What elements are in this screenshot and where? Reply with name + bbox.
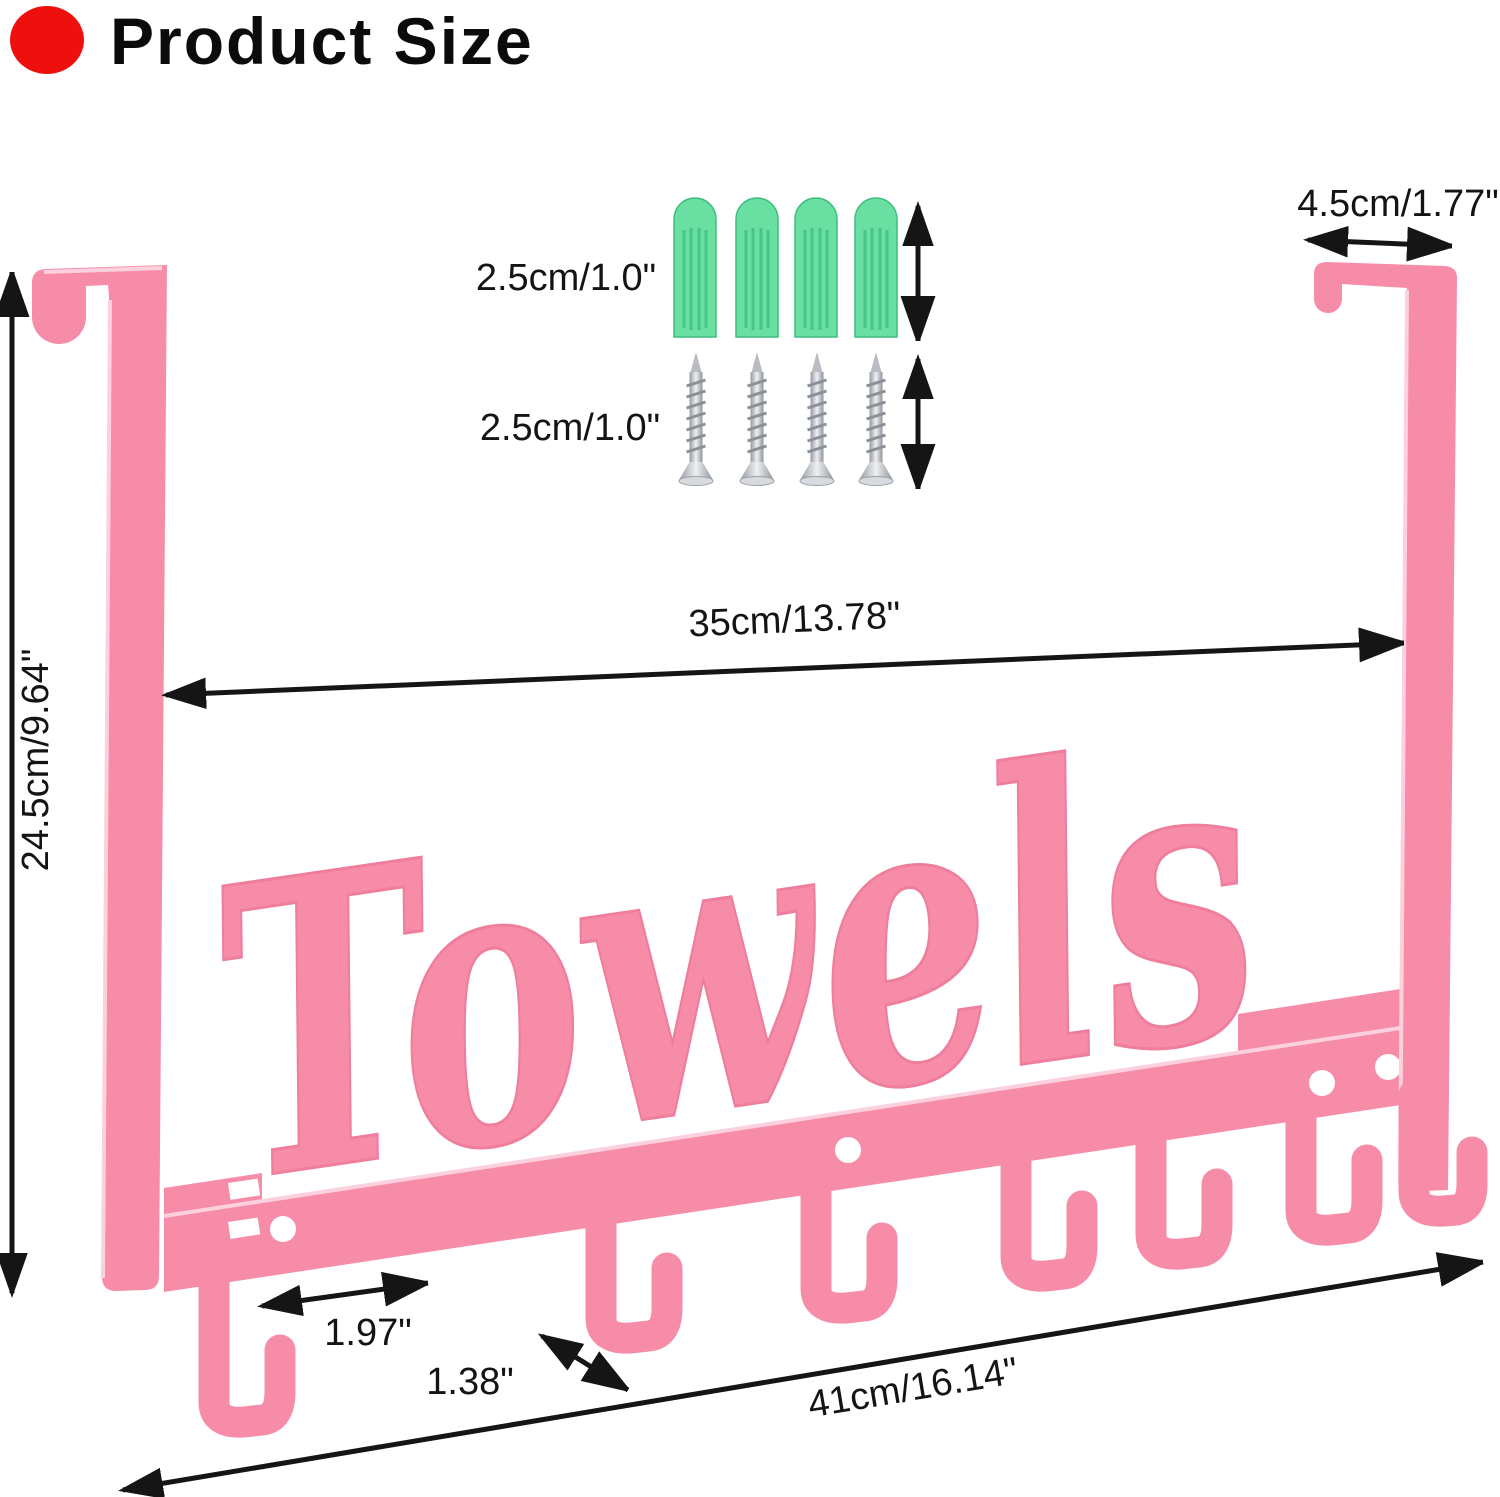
product-size-infographic: Product Size <box>0 0 1500 1497</box>
towels-script: Towels <box>188 657 1285 1272</box>
hook-width-label: 1.38" <box>426 1361 513 1403</box>
hook-3 <box>816 1182 882 1308</box>
anchor-3 <box>795 198 837 337</box>
wall-anchors <box>674 198 897 337</box>
screw-length-label: 2.5cm/1.0" <box>480 407 660 449</box>
screw-3 <box>800 352 834 486</box>
screw-4 <box>859 352 893 486</box>
bracket-depth-label: 4.5cm/1.77" <box>1297 183 1499 225</box>
anchor-2 <box>736 198 778 337</box>
hook-6 <box>1301 1108 1367 1230</box>
page-title: Product Size <box>110 4 534 78</box>
anchor-1 <box>674 198 716 337</box>
hook-1 <box>214 1272 280 1422</box>
total-width-label: 41cm/16.14" <box>805 1350 1021 1426</box>
mounting-hole <box>1309 1070 1335 1096</box>
anchor-4 <box>855 198 897 337</box>
screw-2 <box>740 352 774 486</box>
hook-2 <box>601 1215 667 1338</box>
screws <box>679 352 893 486</box>
hook-spacing-label: 1.97" <box>324 1312 411 1354</box>
bracket-depth-arrow <box>1308 240 1452 246</box>
hook-5 <box>1151 1131 1217 1254</box>
screw-1 <box>679 352 713 486</box>
red-dot-icon <box>10 6 84 74</box>
hook-4 <box>1016 1152 1082 1276</box>
hook-spacing-arrow <box>262 1283 428 1306</box>
height-label: 24.5cm/9.64" <box>15 649 57 872</box>
inner-width-label: 35cm/13.78" <box>688 595 902 646</box>
mounting-hole <box>1375 1054 1401 1080</box>
anchor-length-label: 2.5cm/1.0" <box>476 257 656 299</box>
header: Product Size <box>10 4 534 78</box>
